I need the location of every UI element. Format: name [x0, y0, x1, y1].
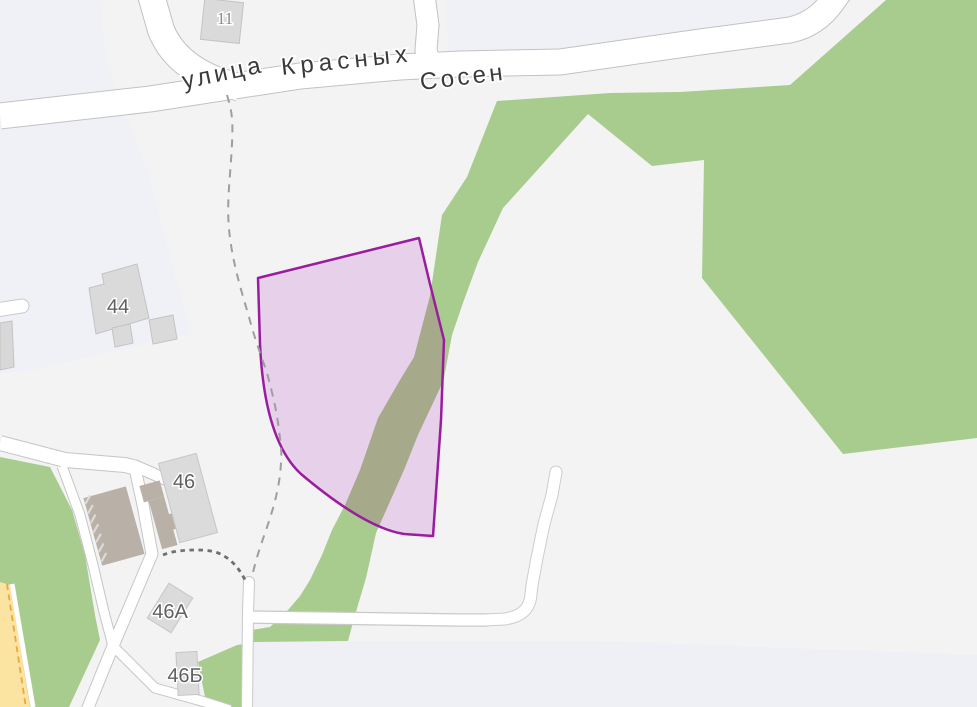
- svg-text:11: 11: [217, 9, 233, 28]
- svg-text:46А: 46А: [152, 601, 188, 623]
- svg-text:44: 44: [107, 296, 129, 318]
- svg-text:46Б: 46Б: [167, 665, 202, 687]
- svg-text:46: 46: [173, 471, 195, 493]
